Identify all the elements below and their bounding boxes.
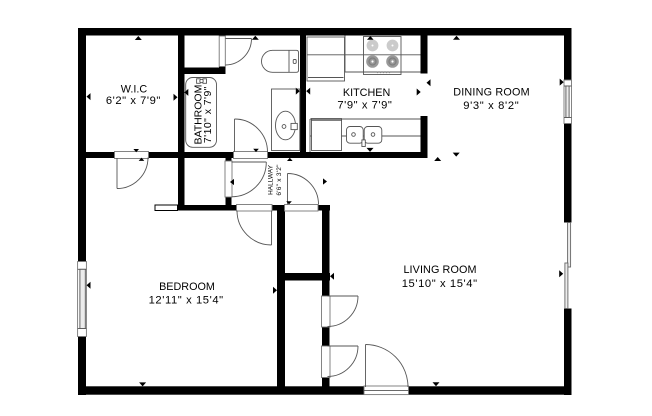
svg-text:LIVING ROOM: LIVING ROOM <box>403 264 476 276</box>
svg-text:7'9" x 7'9": 7'9" x 7'9" <box>337 100 392 112</box>
svg-text:BEDROOM: BEDROOM <box>159 281 215 293</box>
svg-text:HALLWAY: HALLWAY <box>268 164 275 195</box>
svg-text:KITCHEN: KITCHEN <box>343 87 390 99</box>
svg-text:12'11" x 15'4": 12'11" x 15'4" <box>149 295 224 307</box>
svg-text:7'10" x 7'9": 7'10" x 7'9" <box>202 86 214 143</box>
svg-text:DINING ROOM: DINING ROOM <box>453 87 530 99</box>
svg-text:6'2" x 7'9": 6'2" x 7'9" <box>106 95 161 107</box>
svg-text:6'6" x 3'2": 6'6" x 3'2" <box>276 164 283 196</box>
svg-text:9'3" x 8'2": 9'3" x 8'2" <box>463 100 519 112</box>
svg-text:W.I.C: W.I.C <box>121 83 148 95</box>
svg-text:15'10" x 15'4": 15'10" x 15'4" <box>402 278 478 290</box>
